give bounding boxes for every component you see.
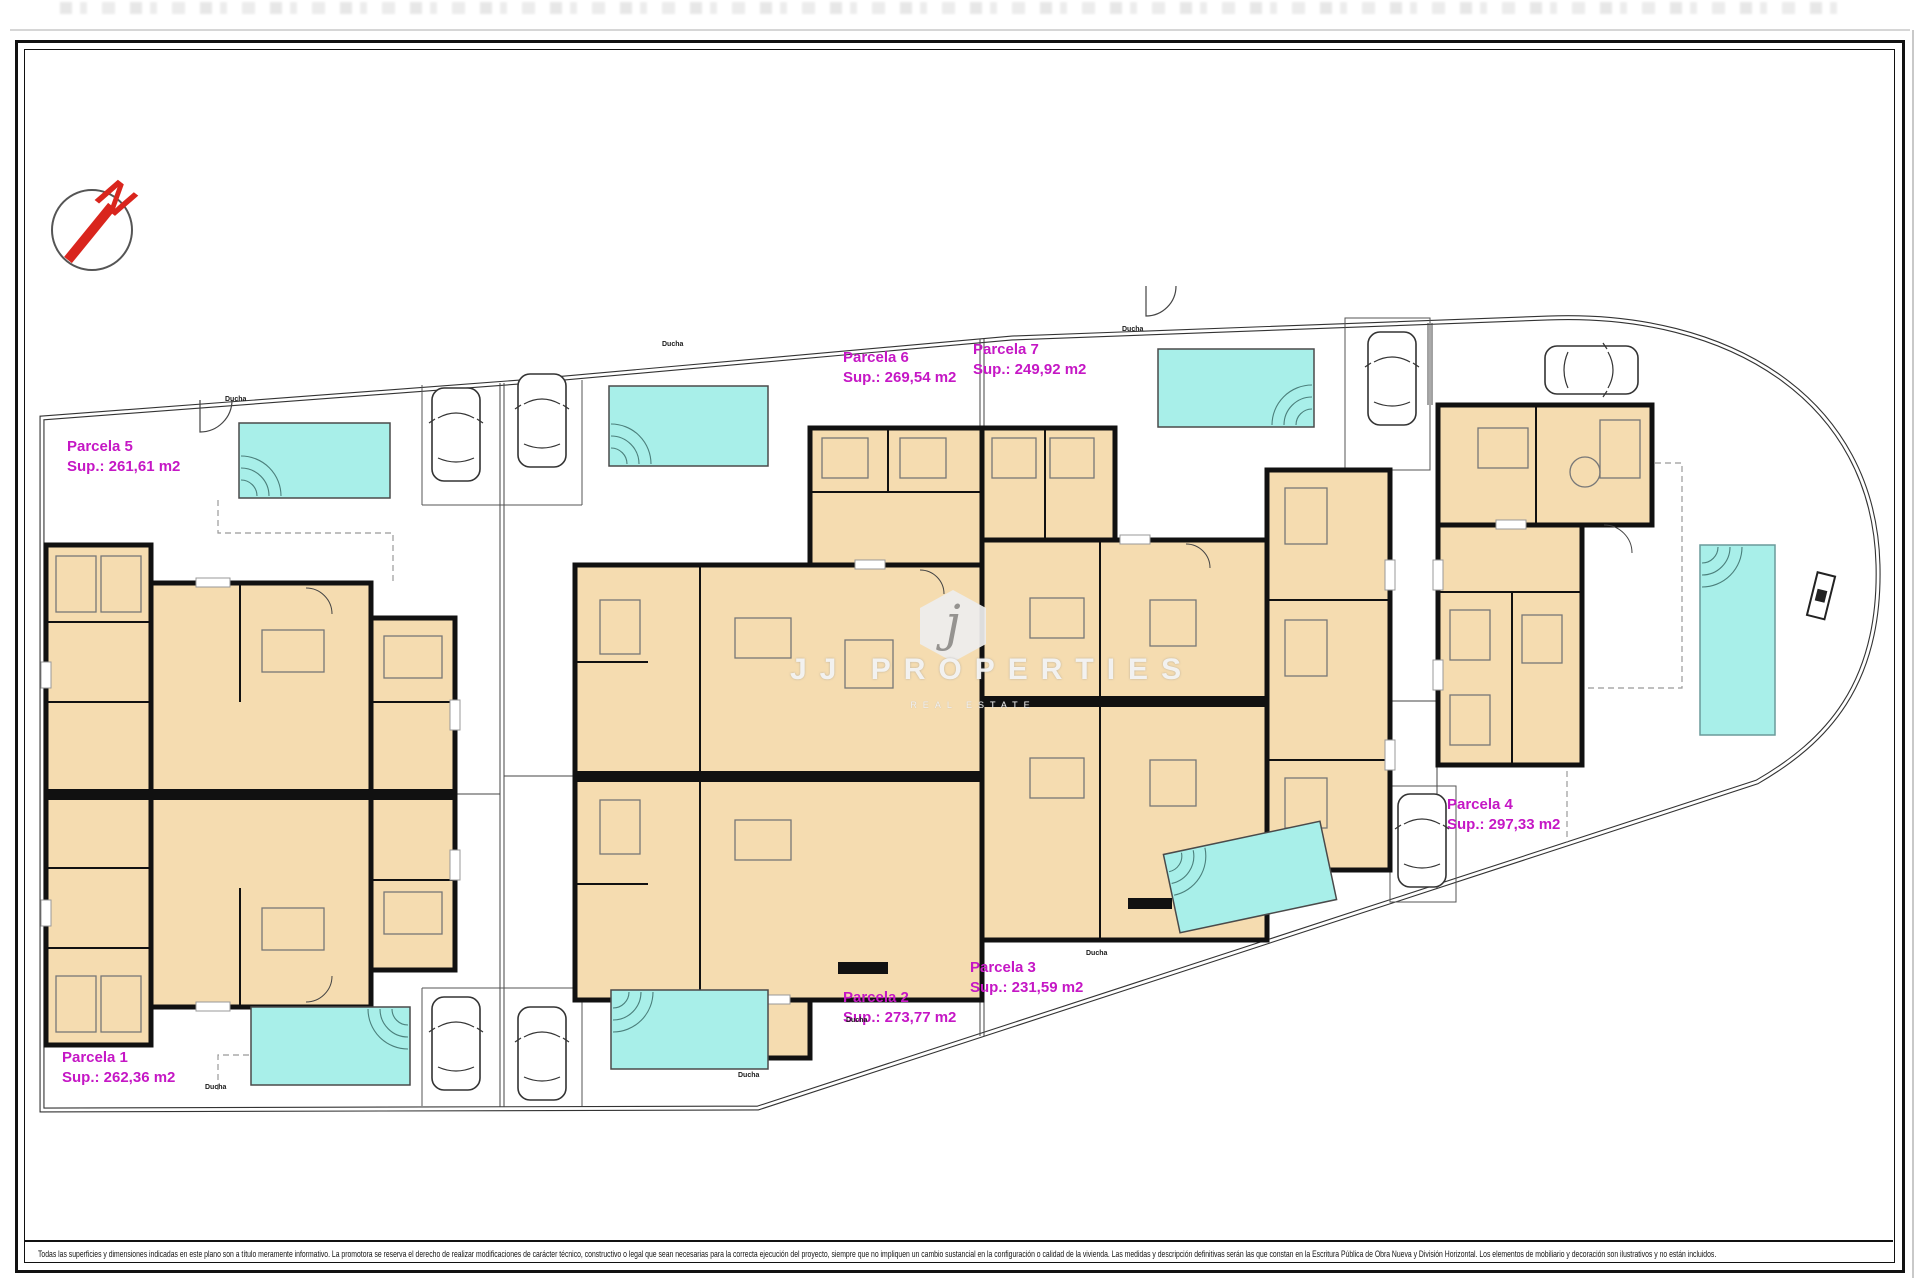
parcel-label-6: Parcela 6 Sup.: 269,54 m2 bbox=[843, 348, 956, 388]
car bbox=[429, 997, 483, 1090]
parcel-label-1: Parcela 1 Sup.: 262,36 m2 bbox=[62, 1048, 175, 1088]
watermark-monogram: j bbox=[945, 594, 961, 652]
parcel-name: Parcela 5 bbox=[67, 437, 180, 457]
parcel-area: Sup.: 249,92 m2 bbox=[973, 360, 1086, 380]
site-plan-page: N j JJ PROPERTIES REAL ESTATE Parcela 5 … bbox=[0, 0, 1920, 1280]
shower-label: Ducha bbox=[205, 1084, 226, 1091]
parcel-area: Sup.: 261,61 m2 bbox=[67, 457, 180, 477]
entry-gate bbox=[1807, 572, 1835, 619]
parcel-label-4: Parcela 4 Sup.: 297,33 m2 bbox=[1447, 795, 1560, 835]
shower-label: Ducha bbox=[1122, 326, 1143, 333]
parcel-name: Parcela 3 bbox=[970, 958, 1083, 978]
pool-parcela-4 bbox=[1700, 545, 1775, 735]
car bbox=[1545, 343, 1638, 397]
watermark-title: JJ PROPERTIES bbox=[790, 653, 1150, 687]
pool-parcela-5 bbox=[239, 423, 390, 498]
parcel-area: Sup.: 297,33 m2 bbox=[1447, 815, 1560, 835]
parcel-name: Parcela 1 bbox=[62, 1048, 175, 1068]
parcel-area: Sup.: 269,54 m2 bbox=[843, 368, 956, 388]
building-left-duplex bbox=[41, 545, 460, 1045]
party-wall bbox=[575, 771, 982, 782]
shower-label: Ducha bbox=[738, 1072, 759, 1079]
parcel-area: Sup.: 262,36 m2 bbox=[62, 1068, 175, 1088]
car bbox=[1395, 794, 1449, 887]
watermark-subtitle: REAL ESTATE bbox=[898, 700, 1048, 710]
parcel-label-3: Parcela 3 Sup.: 231,59 m2 bbox=[970, 958, 1083, 998]
car bbox=[515, 1007, 569, 1100]
shower-label: Ducha bbox=[662, 341, 683, 348]
car bbox=[429, 388, 483, 481]
parcel-area: Sup.: 231,59 m2 bbox=[970, 978, 1083, 998]
building-villa bbox=[1433, 405, 1652, 765]
parcel-name: Parcela 4 bbox=[1447, 795, 1560, 815]
parcel-label-5: Parcela 5 Sup.: 261,61 m2 bbox=[67, 437, 180, 477]
shower-label: Ducha bbox=[1086, 950, 1107, 957]
shower-label: Ducha bbox=[225, 396, 246, 403]
car bbox=[515, 374, 569, 467]
car bbox=[1365, 332, 1419, 425]
north-arrow: N bbox=[52, 169, 144, 270]
pool-parcela-1 bbox=[251, 1007, 410, 1085]
parcel-name: Parcela 2 bbox=[843, 988, 956, 1008]
parcel-name: Parcela 7 bbox=[973, 340, 1086, 360]
pool-parcela-2 bbox=[611, 990, 768, 1069]
disclaimer-text: Todas las superficies y dimensiones indi… bbox=[38, 1249, 1881, 1260]
pool-parcela-7 bbox=[1158, 349, 1314, 427]
party-wall bbox=[46, 789, 455, 800]
shower-label: Ducha bbox=[846, 1017, 867, 1024]
parcel-name: Parcela 6 bbox=[843, 348, 956, 368]
pool-parcela-6 bbox=[609, 386, 768, 466]
building-center-duplex bbox=[575, 428, 982, 1058]
parcel-label-7: Parcela 7 Sup.: 249,92 m2 bbox=[973, 340, 1086, 380]
